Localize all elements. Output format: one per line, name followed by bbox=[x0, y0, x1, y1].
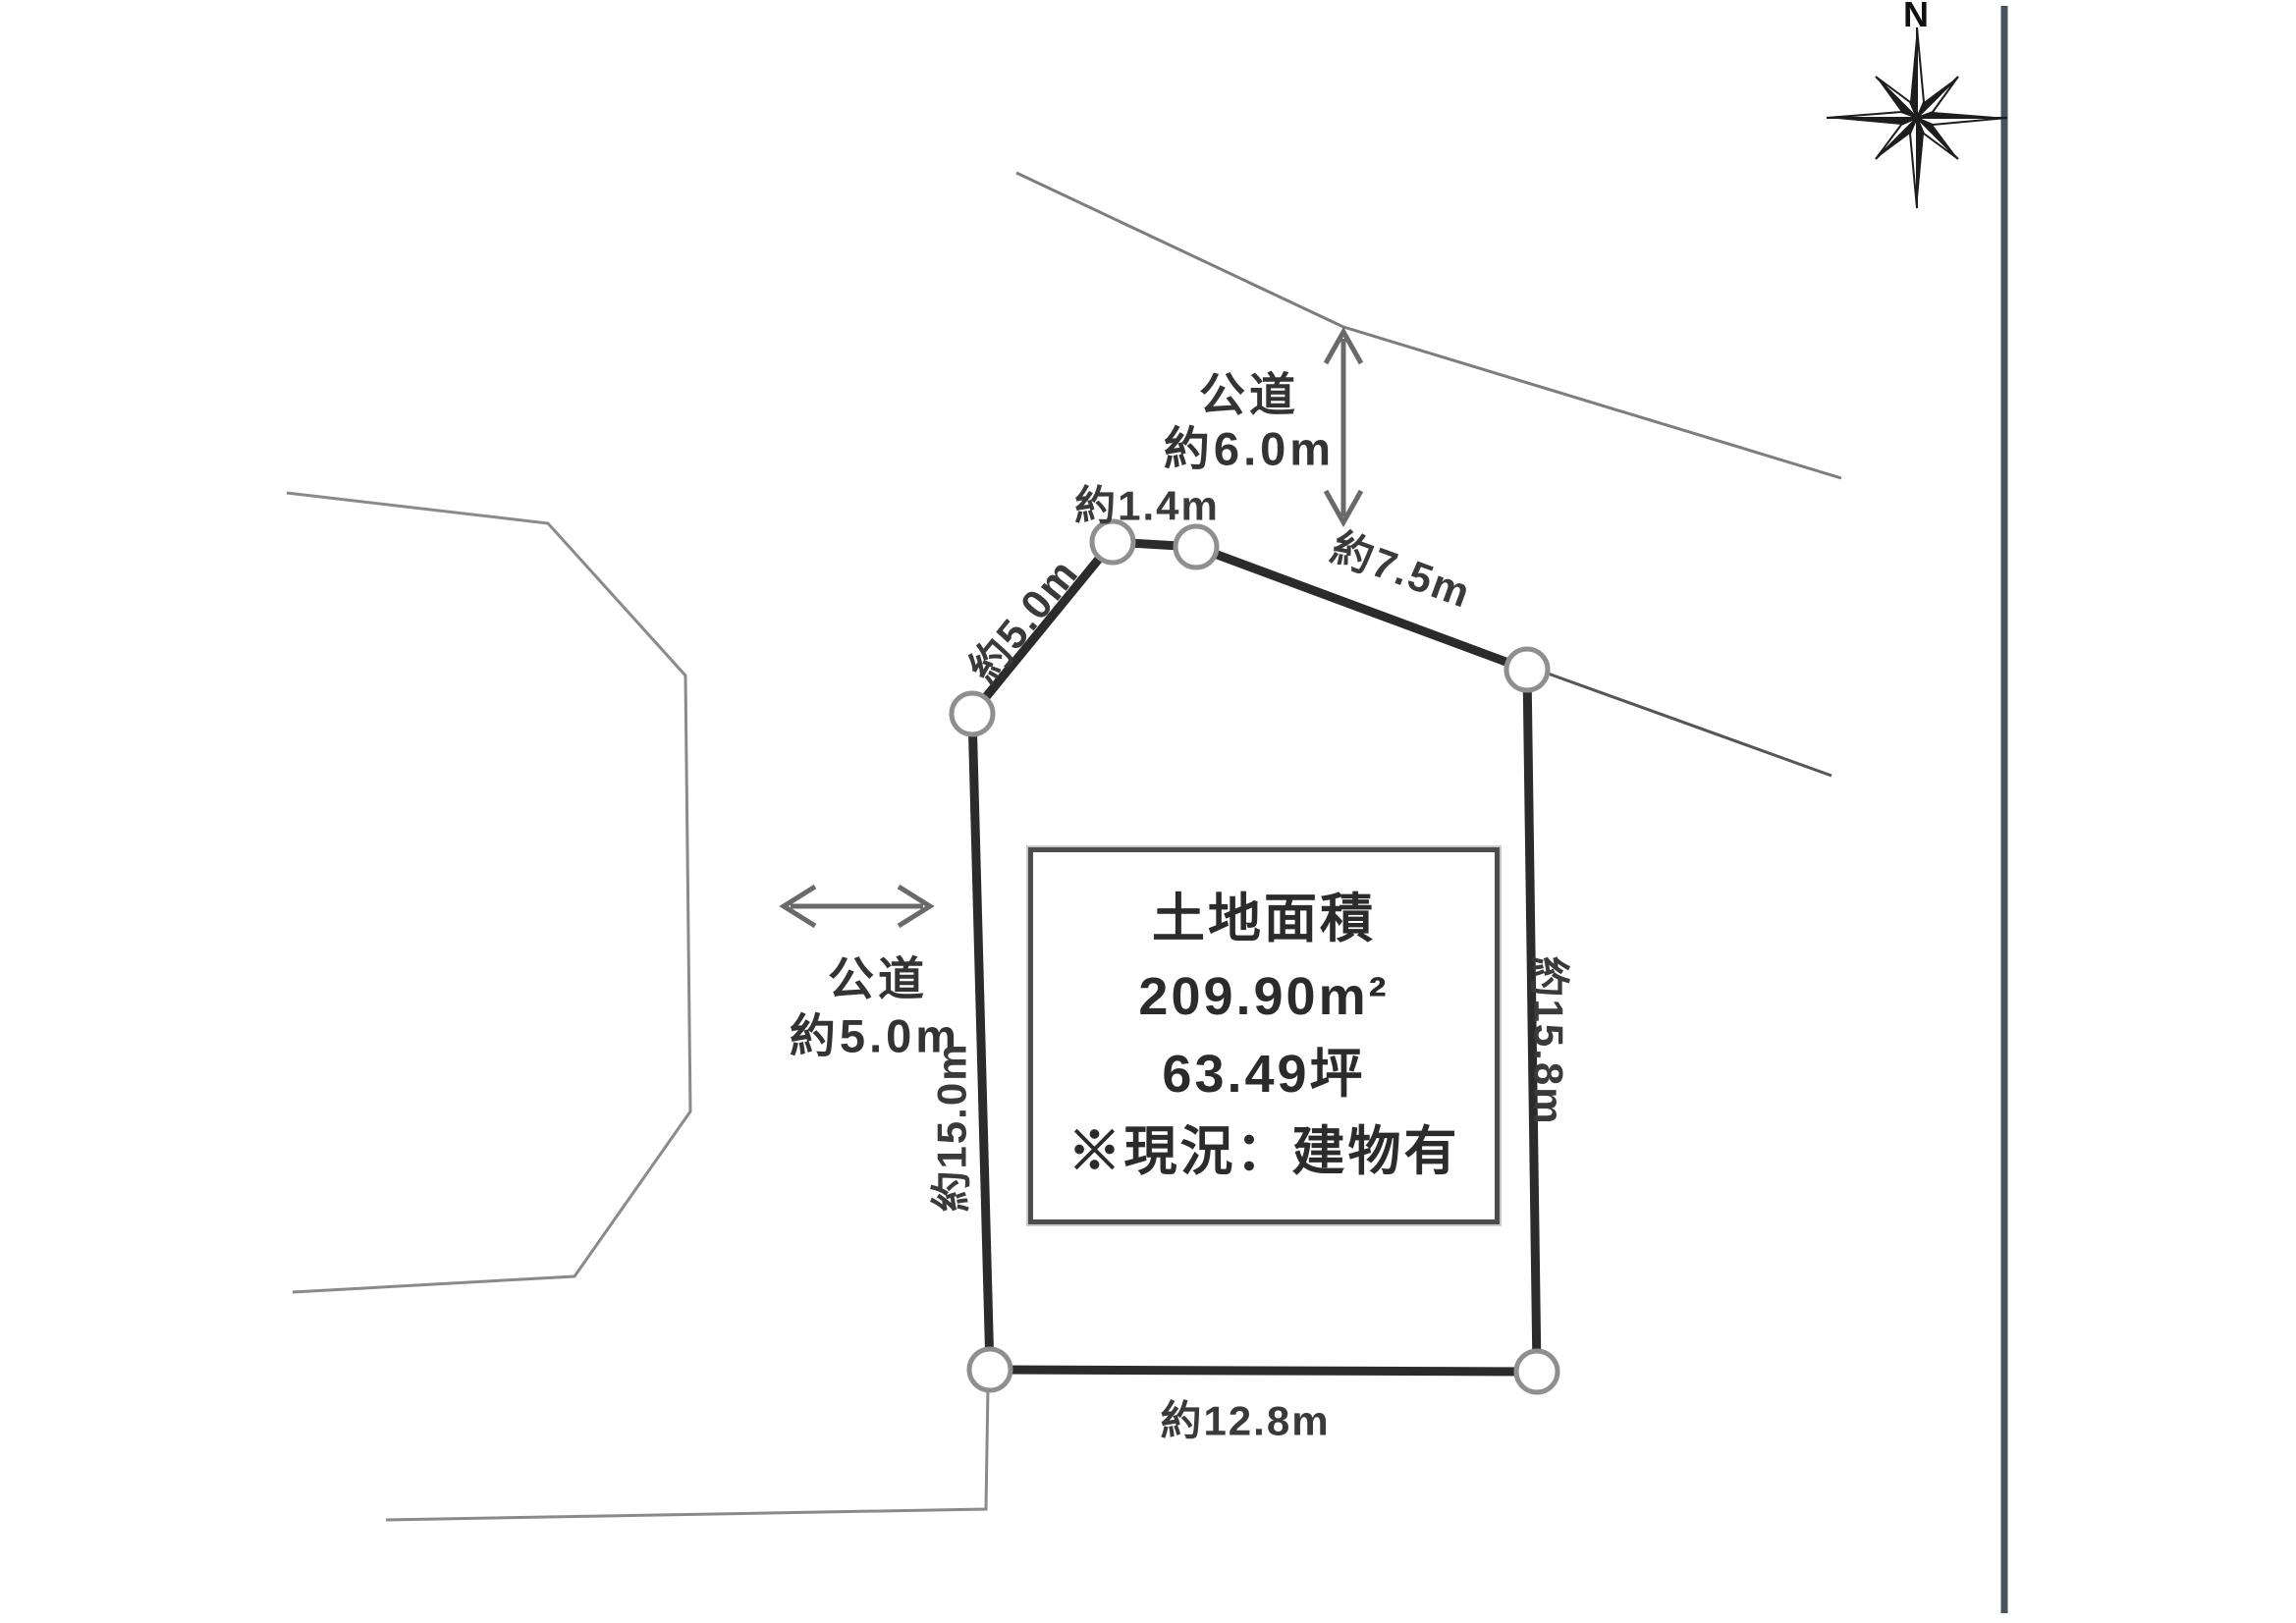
land-area-info-box: 土地面積 209.90m² 63.49坪 ※現況：建物有 bbox=[1028, 847, 1500, 1224]
info-area-tsubo: 63.49坪 bbox=[1162, 1036, 1365, 1113]
top-road-width: 約6.0m bbox=[1164, 411, 1335, 479]
info-area-sqm: 209.90m² bbox=[1138, 958, 1389, 1036]
diagram-linework bbox=[0, 0, 2296, 1623]
land-plot-diagram: N 公道 約6.0m 公道 約5.0m 約1.4m 約5.0m 約7.5m 約1… bbox=[0, 0, 2296, 1623]
road-lines bbox=[287, 173, 1841, 1520]
edge-label-bottom: 約12.8m bbox=[1160, 1388, 1330, 1448]
edge-label-right: 約15.8m bbox=[1522, 955, 1582, 1125]
edge-label-left: 約15.0m bbox=[919, 1042, 979, 1212]
compass-rose-icon bbox=[1827, 27, 2007, 208]
edge-label-top-short: 約1.4m bbox=[1074, 473, 1220, 533]
compass-north-label: N bbox=[1903, 0, 1929, 35]
info-note: ※現況：建物有 bbox=[1068, 1113, 1460, 1191]
info-title: 土地面積 bbox=[1152, 881, 1376, 958]
